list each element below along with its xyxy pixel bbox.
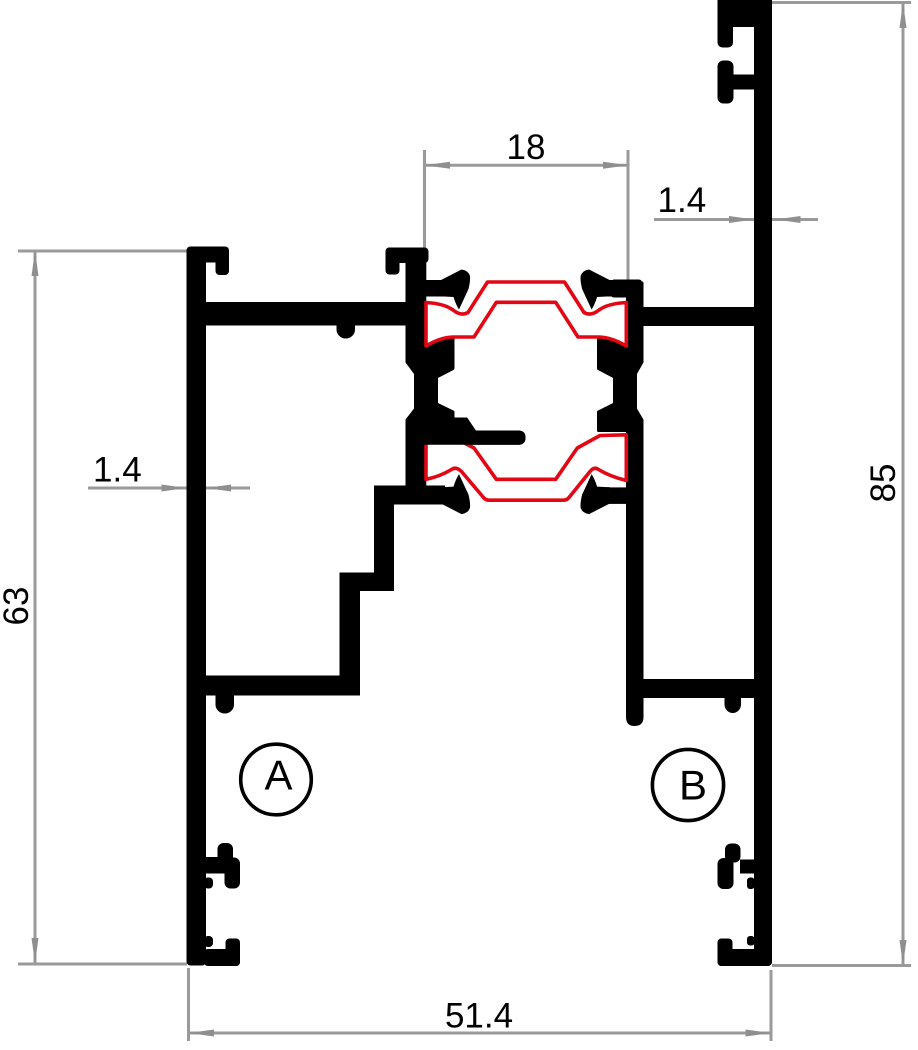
svg-text:18: 18 xyxy=(507,128,546,167)
svg-text:B: B xyxy=(679,762,707,809)
svg-text:A: A xyxy=(264,752,292,799)
svg-text:1.4: 1.4 xyxy=(658,181,707,220)
svg-text:51.4: 51.4 xyxy=(445,997,513,1036)
svg-text:63: 63 xyxy=(0,587,36,626)
svg-text:1.4: 1.4 xyxy=(93,451,142,490)
svg-text:85: 85 xyxy=(864,464,903,503)
